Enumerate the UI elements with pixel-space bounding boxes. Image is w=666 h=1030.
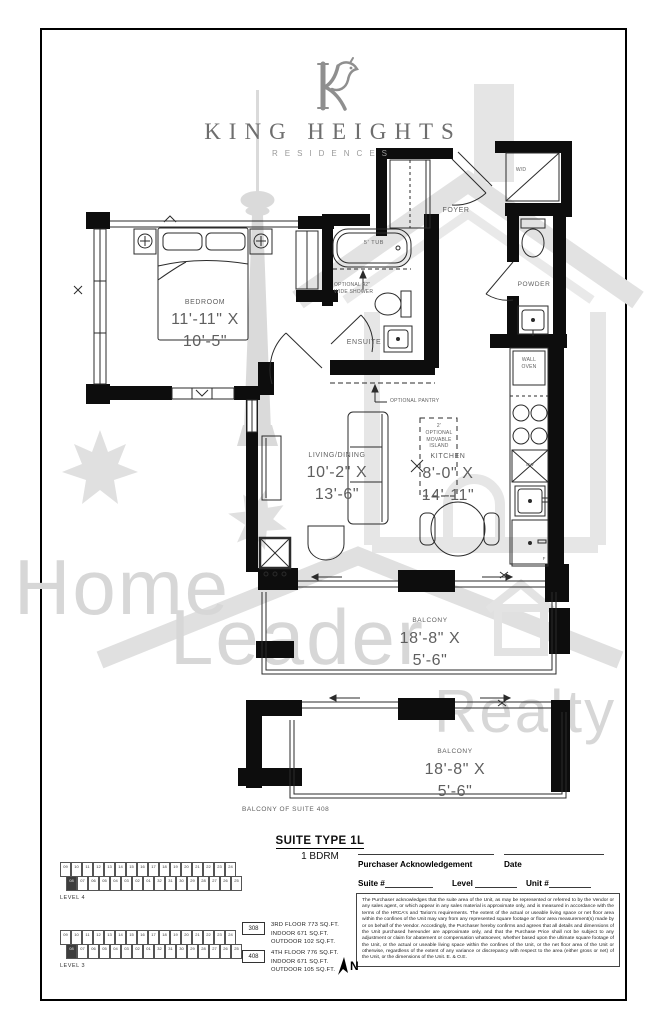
tv-console — [262, 436, 281, 500]
keyplan-unit: 05 — [99, 876, 110, 891]
keyplan-unit: 10 — [71, 862, 82, 877]
dishwasher-label: DW — [518, 462, 542, 468]
keyplan-unit: 01 — [143, 944, 154, 959]
island-label: 2' OPTIONAL MOVABLE ISLAND — [419, 423, 459, 450]
keyplan-unit: 14 — [115, 862, 126, 877]
keyplan-unit: 22 — [203, 862, 214, 877]
keyplan-unit: 12 — [93, 862, 104, 877]
balcony-lower-dims: 18'-8" X 5'-6" — [413, 759, 497, 802]
stat-line: OUTDOOR 105 SQ.FT. — [271, 966, 338, 975]
brand-name: KING HEIGHTS — [0, 119, 666, 145]
keyplan-grid: 0910111213141516171819202122232408070605… — [60, 930, 242, 959]
keyplan-unit: 20 — [181, 862, 192, 877]
foyer-label: FOYER — [425, 206, 487, 215]
north-label: N — [350, 959, 359, 973]
pantry-label: OPTIONAL PANTRY — [390, 398, 480, 405]
keyplan-unit: 26 — [220, 876, 231, 891]
keyplan-unit: 23 — [214, 862, 225, 877]
keyplan-unit: 27 — [209, 876, 220, 891]
keyplan-unit: 02 — [132, 944, 143, 959]
keyplan-unit: 13 — [104, 930, 115, 945]
keyplan-unit: 04 — [110, 876, 121, 891]
stat-line: 3RD FLOOR 773 SQ.FT. — [271, 921, 339, 930]
unit-number-field: Unit # — [526, 879, 591, 888]
keyplan-unit: 03 — [121, 876, 132, 891]
fixtures — [74, 152, 559, 706]
keyplan-unit: 24 — [225, 930, 236, 945]
suite-308-stats: 308 3RD FLOOR 773 SQ.FT.INDOOR 671 SQ.FT… — [242, 921, 352, 948]
suite-code-badge: 408 — [242, 950, 265, 963]
keyplan-unit: 25 — [231, 876, 242, 891]
keyplan-unit: 12 — [93, 930, 104, 945]
logo: KING HEIGHTS RESIDENCES — [0, 56, 666, 158]
keyplan-unit: 13 — [104, 862, 115, 877]
keyplan-unit: 23 — [214, 930, 225, 945]
keyplan-unit: 15 — [126, 862, 137, 877]
keyplan-unit: 15 — [126, 930, 137, 945]
cooktop — [513, 405, 547, 444]
balcony-upper-dims: 18'-8" X 5'-6" — [388, 628, 472, 671]
keyplan-unit: 27 — [209, 944, 220, 959]
nightstand — [250, 229, 272, 254]
keyplan-unit: 19 — [170, 862, 181, 877]
keyplan-unit: 19 — [170, 930, 181, 945]
keyplan-unit: 29 — [187, 944, 198, 959]
bedroom-label: BEDROOM — [163, 298, 247, 307]
keyplan-unit: 32 — [154, 876, 165, 891]
keyplan-unit: 07 — [77, 944, 88, 959]
balcony-lower-label: BALCONY — [413, 748, 497, 757]
stat-line: INDOOR 671 SQ.FT. — [271, 958, 338, 967]
powder-label: POWDER — [504, 281, 564, 290]
kitchen-counter — [510, 348, 548, 564]
purchaser-ack-label: Purchaser Acknowledgement — [358, 860, 472, 869]
purchaser-signature-line — [358, 854, 494, 855]
stat-line: 4TH FLOOR 776 SQ.FT. — [271, 949, 338, 958]
bedroom-dims: 11'-11" X 10'-5" — [163, 309, 247, 352]
washer-dryer-closet — [506, 153, 559, 201]
keyplan-unit: 16 — [137, 930, 148, 945]
date-signature-line — [504, 854, 604, 855]
keyplan-unit: 24 — [225, 862, 236, 877]
keyplan-unit: 02 — [132, 876, 143, 891]
keyplan-unit: 31 — [165, 876, 176, 891]
keyplan-level-4: 0910111213141516171819202122232408070605… — [60, 862, 242, 901]
fridge-label: F — [538, 556, 550, 562]
kitchen-sink — [515, 486, 548, 516]
keyplan-unit: 06 — [88, 876, 99, 891]
stat-line: INDOOR 671 SQ.FT. — [271, 930, 339, 939]
ensuite-label: ENSUITE — [336, 338, 392, 347]
suite-type-title: SUITE TYPE 1L — [276, 835, 365, 849]
pantry-leader — [372, 385, 387, 402]
ensuite-tub — [333, 229, 411, 267]
keyplan-unit: 26 — [220, 944, 231, 959]
living-label: LIVING/DINING — [295, 451, 379, 460]
keyplan-unit: 32 — [154, 944, 165, 959]
keyplan-level-3: 0910111213141516171819202122232408070605… — [60, 930, 242, 969]
keyplan-unit: 09 — [60, 862, 71, 877]
unit-number-blank — [549, 879, 591, 888]
powder-sink — [518, 306, 548, 336]
keyplan-unit: 20 — [181, 930, 192, 945]
horse-emblem-icon — [301, 56, 365, 112]
keyplan-unit: 30 — [176, 876, 187, 891]
shaft — [260, 538, 290, 568]
keyplan-unit: 29 — [187, 876, 198, 891]
keyplan-unit: 21 — [192, 862, 203, 877]
suite-number-blank — [385, 879, 433, 888]
legal-disclaimer: The Purchaser acknowledges that the suit… — [356, 893, 620, 967]
entry-door — [452, 152, 492, 205]
keyplan-unit: 16 — [137, 862, 148, 877]
windows-and-rails — [94, 221, 566, 798]
wd-label: W/D — [506, 167, 536, 174]
keyplan-unit: 17 — [148, 930, 159, 945]
accent-chair — [308, 526, 344, 560]
keyplan-unit: 11 — [82, 862, 93, 877]
keyplan-unit: 25 — [231, 944, 242, 959]
bedroom-closet — [296, 231, 318, 289]
suite-number-field: Suite # — [358, 879, 433, 888]
living-dims: 10'-2" X 13'-6" — [295, 462, 379, 505]
wall-oven-label: WALL OVEN — [511, 357, 547, 371]
bedroom-door — [270, 333, 322, 384]
north-arrow: N — [336, 956, 370, 976]
keyplan-unit: 28 — [198, 944, 209, 959]
suite-stat-lines: 4TH FLOOR 776 SQ.FT.INDOOR 671 SQ.FT.OUT… — [271, 949, 338, 975]
suite-code-badge: 308 — [242, 922, 265, 935]
keyplan-unit: 08 — [66, 876, 77, 891]
keyplan-unit: 18 — [159, 930, 170, 945]
keyplan-level-label: LEVEL 4 — [60, 895, 242, 901]
level-blank — [475, 879, 517, 888]
nightstand — [134, 229, 156, 254]
north-arrow-icon — [336, 956, 349, 976]
keyplan-unit: 10 — [71, 930, 82, 945]
balcony-upper-label: BALCONY — [388, 617, 472, 626]
keyplan-unit: 11 — [82, 930, 93, 945]
keyplan-unit: 04 — [110, 944, 121, 959]
keyplan-unit: 18 — [159, 862, 170, 877]
keyplan-unit: 30 — [176, 944, 187, 959]
level-field: Level — [452, 879, 517, 888]
suite-number-label: Suite # — [358, 879, 385, 888]
keyplan-unit: 17 — [148, 862, 159, 877]
dining-table — [420, 502, 499, 556]
suite-type-block: SUITE TYPE 1L 1 BDRM — [250, 831, 390, 862]
date-label: Date — [504, 860, 522, 869]
keyplan-unit: 28 — [198, 876, 209, 891]
keyplan-unit: 03 — [121, 944, 132, 959]
kitchen-label: KITCHEN — [410, 452, 486, 461]
balcony-note: BALCONY OF SUITE 408 — [242, 806, 422, 815]
brand-tagline: RESIDENCES — [0, 149, 666, 158]
keyplan-unit: 09 — [60, 930, 71, 945]
powder-toilet — [521, 219, 545, 257]
keyplan-unit: 01 — [143, 876, 154, 891]
suite-stat-lines: 3RD FLOOR 773 SQ.FT.INDOOR 671 SQ.FT.OUT… — [271, 921, 339, 947]
shower-label: OPTIONAL 42" WIDE SHOWER — [334, 282, 392, 296]
keyplan-grid: 0910111213141516171819202122232408070605… — [60, 862, 242, 891]
keyplan-level-label: LEVEL 3 — [60, 963, 242, 969]
keyplan-unit: 08 — [66, 944, 77, 959]
keyplan-unit: 31 — [165, 944, 176, 959]
unit-number-label: Unit # — [526, 879, 549, 888]
level-label: Level — [452, 879, 473, 888]
keyplan-unit: 05 — [99, 944, 110, 959]
stat-line: OUTDOOR 102 SQ.FT. — [271, 938, 339, 947]
keyplan-unit: 07 — [77, 876, 88, 891]
keyplan-unit: 21 — [192, 930, 203, 945]
tub-label: 5' TUB — [352, 240, 396, 247]
keyplan-unit: 14 — [115, 930, 126, 945]
keyplan-unit: 06 — [88, 944, 99, 959]
keyplan-unit: 22 — [203, 930, 214, 945]
kitchen-dims: 8'-0" X 14'-11" — [410, 463, 486, 506]
